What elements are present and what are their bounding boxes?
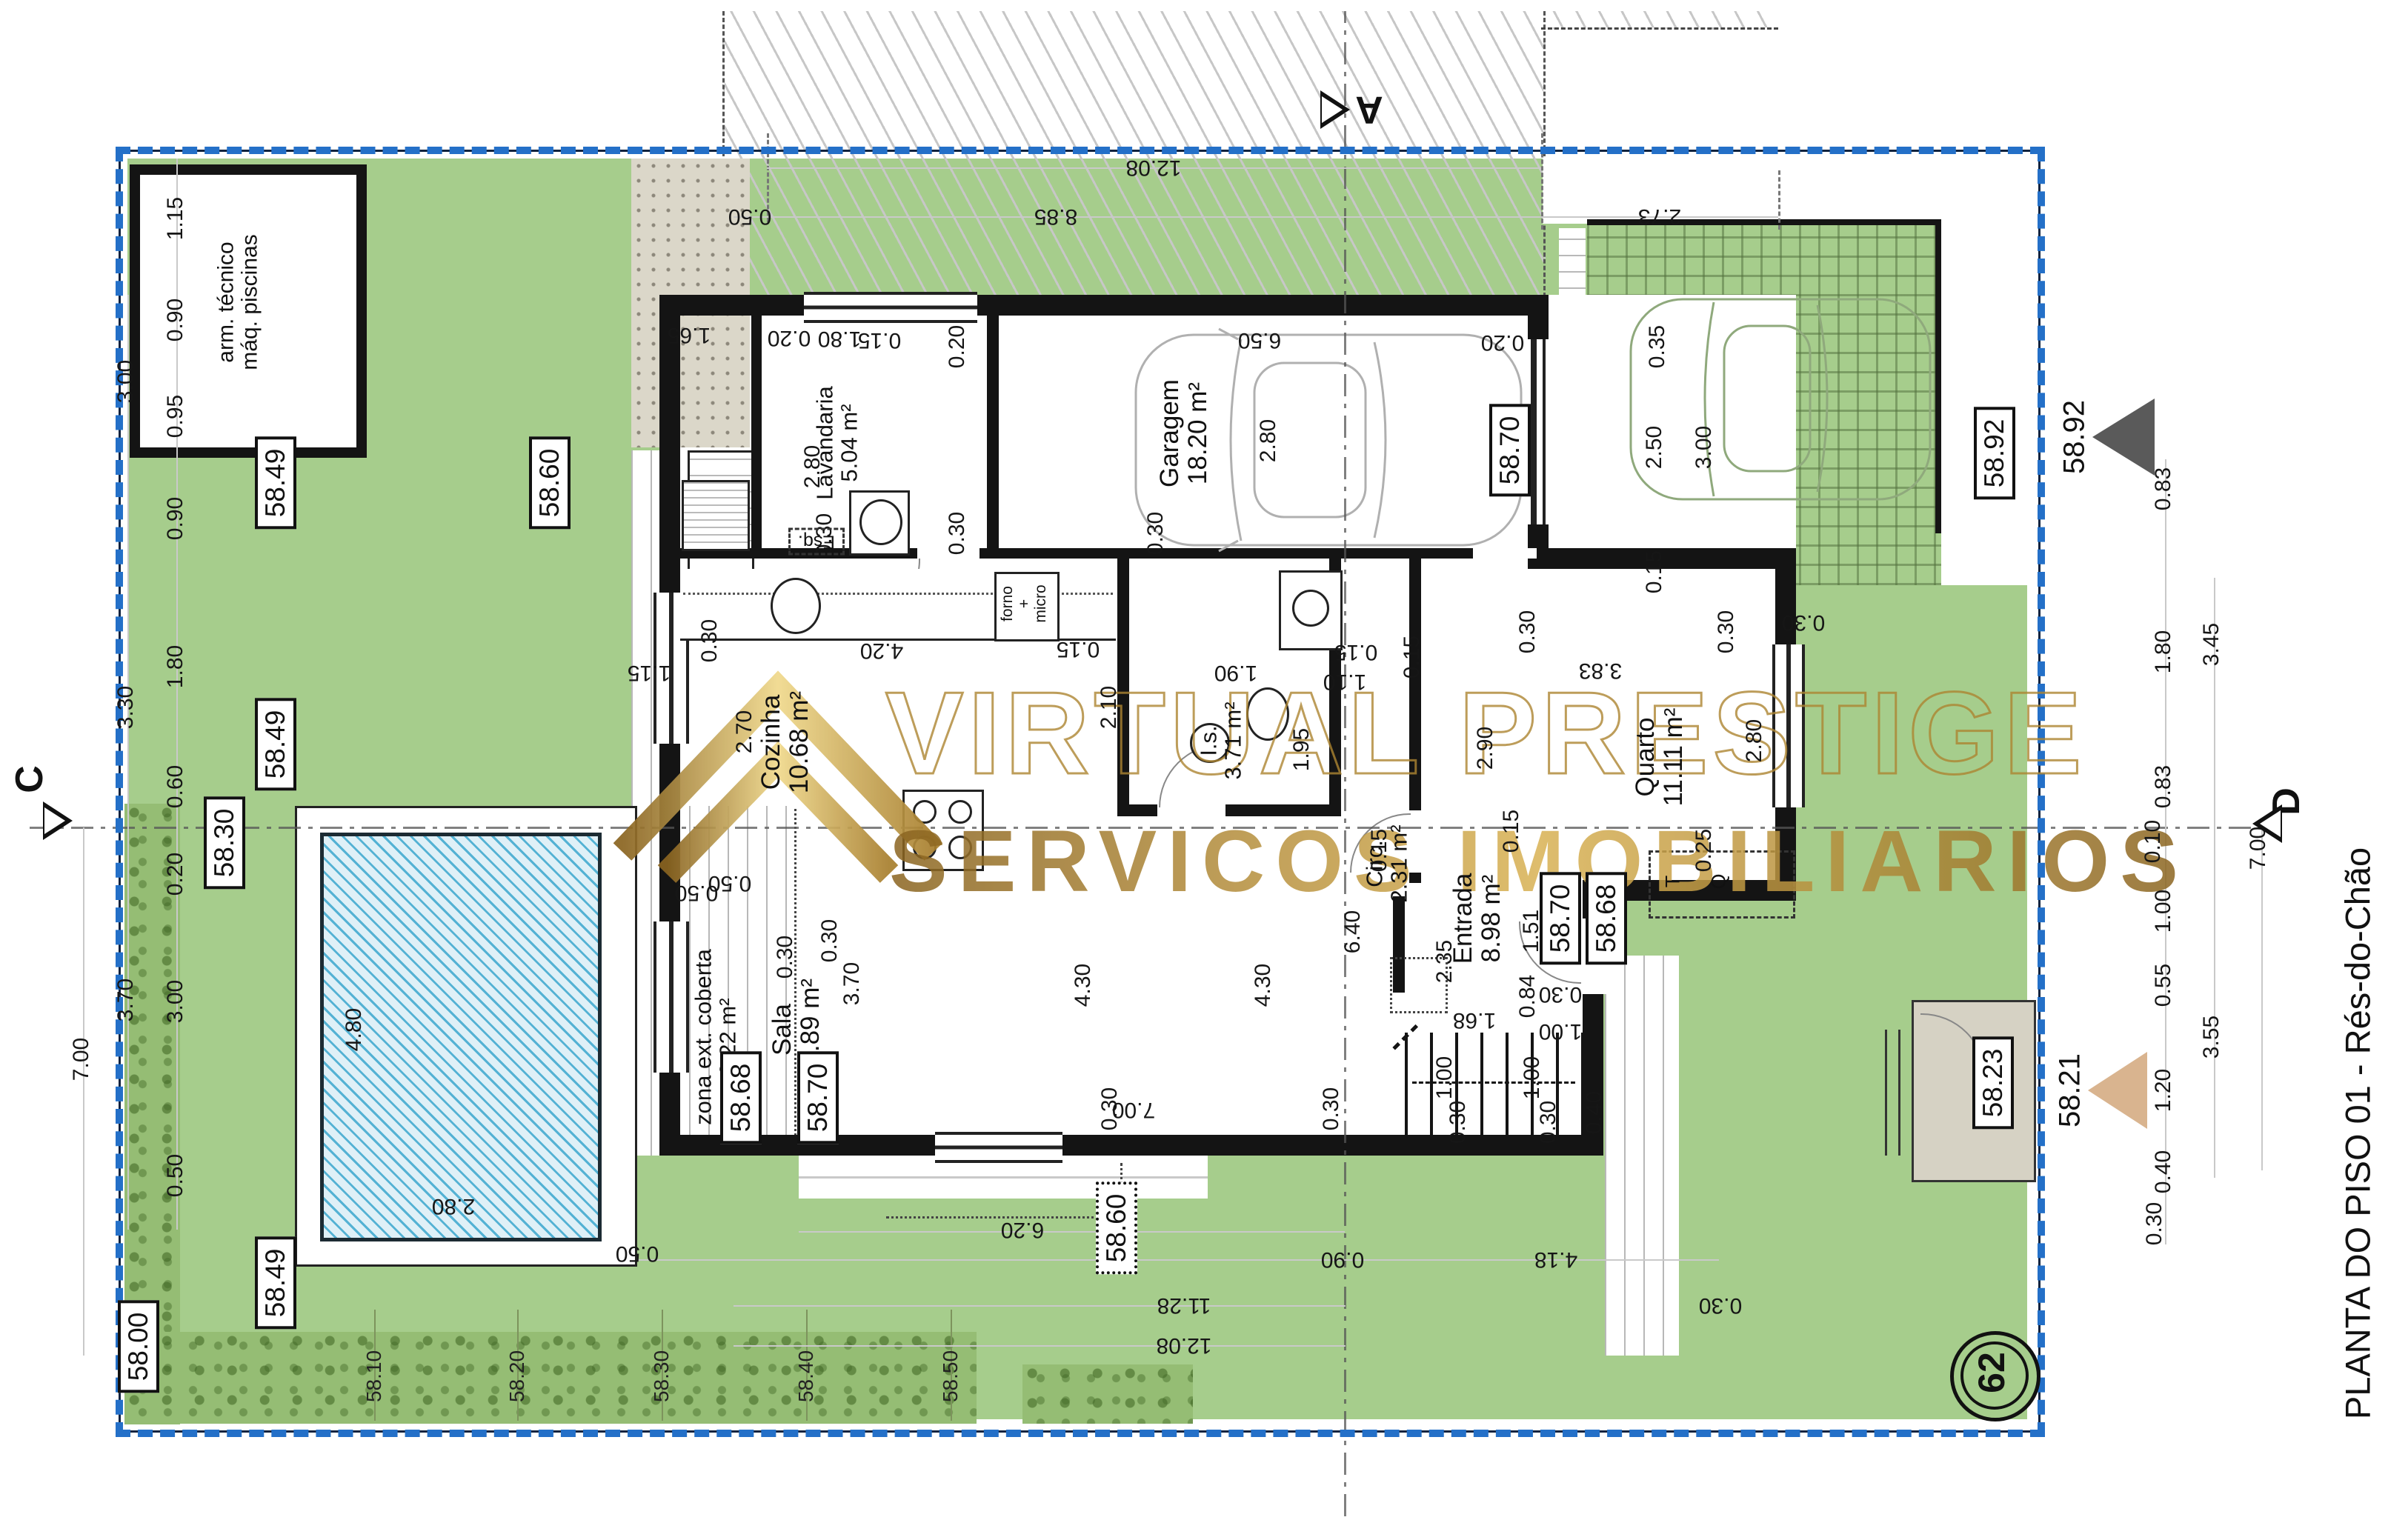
room-label: T <box>1662 876 1683 888</box>
watermark-text-sub: SERVICOS IMOBILIARIOS <box>889 811 2189 912</box>
dimension-label: 0.30 <box>1143 512 1168 555</box>
room-label-line: 11.11 m² <box>1660 708 1688 807</box>
dimension-label: 0.20 <box>163 853 188 896</box>
room-label-line: zona ext. coberta <box>691 949 716 1125</box>
contour-elevation-label: 58.30 <box>650 1350 673 1402</box>
dimension-label: 1.68 <box>1453 1007 1496 1033</box>
room-label-line: forno <box>1000 584 1017 622</box>
dimension-label: 1.90 <box>1214 660 1257 685</box>
spot-elevation-label: 58.21 <box>2054 1053 2087 1127</box>
spot-elevation-label: 58.92 <box>2058 400 2092 474</box>
dimension-label: 0.30 <box>1539 981 1582 1007</box>
dimension-label: 1.80 <box>818 326 861 351</box>
dimension-label: 2.70 <box>732 710 757 753</box>
dimension-label: 6.40 <box>1340 910 1366 953</box>
contour-elevation-label: 58.40 <box>794 1350 818 1402</box>
dimension-label: 0.30 <box>697 619 722 662</box>
dimension-label: 0.40 <box>2151 1150 2176 1193</box>
dimension-label: 0.15 <box>1400 636 1425 679</box>
existing-building-hatch-strip <box>1541 11 1778 30</box>
dimension-label: 1.00 <box>1539 1019 1582 1044</box>
dimension-label: 11.28 <box>1157 1293 1211 1318</box>
room-label-line: micro <box>1033 584 1050 622</box>
elevation-marker: 58.00 <box>118 1301 159 1393</box>
dimension-label: 1.00 <box>1432 1056 1457 1099</box>
dimension-label: 0.30 <box>817 919 842 962</box>
room-label-line: Lavandaria <box>813 386 837 499</box>
room-label-line: 18.20 m² <box>1184 379 1212 487</box>
dimension-label: 0.30 <box>1699 1293 1742 1318</box>
elevation-marker: 58.68 <box>1586 873 1627 965</box>
dimension-label: 2.10 <box>1097 686 1122 729</box>
dimension-label: 0.40 <box>1582 1091 1607 1134</box>
dimension-label: 1.15 <box>628 660 671 685</box>
room-label: I.s.3.71 m² <box>1197 701 1246 779</box>
room-label-line: I.s. <box>1197 701 1221 779</box>
dimension-label: 7.00 <box>69 1038 94 1081</box>
dimension-label: 0.50 <box>163 1154 188 1197</box>
dimension-label: 0.30 <box>1319 1087 1344 1130</box>
dimension-label: 0.20 <box>1481 330 1524 355</box>
dimension-label: 0.30 <box>1536 1101 1561 1144</box>
dimension-label: 3.70 <box>839 962 865 1005</box>
room-label-line: 3.71 m² <box>1221 701 1245 779</box>
room-label-line: Cozinha <box>757 691 785 793</box>
room-label: Esq. <box>788 528 845 556</box>
dimension-label: 0.30 <box>1515 610 1540 653</box>
dimension-label: 8.85 <box>1034 204 1077 229</box>
dimension-label: 0.15 <box>1057 636 1100 661</box>
dimension-label: 12.08 <box>1156 1333 1211 1358</box>
floor-plan-canvas: VIRTUAL PRESTIGE SERVICOS IMOBILIARIOS 6… <box>0 0 2408 1520</box>
elevation-marker: 58.60 <box>529 437 571 530</box>
dimension-label: 0.30 <box>1446 1101 1471 1144</box>
dimension-label: 4.30 <box>1251 964 1276 1007</box>
elevation-marker: 58.49 <box>255 1237 296 1330</box>
elevation-marker: 58.30 <box>204 797 245 890</box>
dimension-label: 3.30 <box>113 686 139 729</box>
room-label-line: + <box>1017 584 1034 622</box>
dimension-label: 0.90 <box>1321 1247 1364 1272</box>
dimension-label: 2.73 <box>1638 204 1681 229</box>
dimension-label: 0.20 <box>945 325 970 368</box>
dim-line <box>2261 827 2263 1170</box>
dimension-label: 0.15 <box>1334 639 1377 664</box>
dimension-label: 3.55 <box>2199 1016 2224 1059</box>
room-label: Q <box>1708 873 1729 889</box>
room-label-line: 5.04 m² <box>837 386 862 499</box>
dimension-label: 6.50 <box>1238 327 1281 353</box>
dimension-label: 6.20 <box>1001 1217 1044 1242</box>
room-label-line: T <box>1662 876 1683 888</box>
dimension-label: 0.83 <box>2151 765 2176 808</box>
room-label: Cozinha10.68 m² <box>757 691 814 793</box>
room-label: Entrada8.98 m² <box>1449 873 1506 964</box>
section-marker-triangle-inner <box>44 807 65 834</box>
elevation-marker: 58.70 <box>1540 873 1581 965</box>
lot-number: 62 <box>1970 1352 2013 1393</box>
room-label-line: 2.31 m² <box>1387 824 1411 902</box>
room-label-line: máq. piscinas <box>239 234 262 370</box>
room-label: arm. técnicomáq. piscinas <box>215 234 263 370</box>
dimension-label: 0.60 <box>163 765 188 808</box>
elevation-marker: 58.92 <box>1974 407 2015 500</box>
elevation-marker: 58.70 <box>1489 404 1531 497</box>
dimension-label: 1.95 <box>1289 728 1314 771</box>
dimension-label: 0.50 <box>728 204 771 229</box>
room-label-line: Garagem <box>1156 379 1184 487</box>
dimension-label: 3.00 <box>163 980 188 1023</box>
dimension-label: 1.20 <box>2151 1069 2176 1112</box>
room-label-line: 10.68 m² <box>785 691 814 793</box>
dimension-label: 0.30 <box>945 512 970 555</box>
room-label: Lavandaria5.04 m² <box>813 386 862 499</box>
section-marker-C: C <box>7 765 52 793</box>
contour-elevation-label: 58.50 <box>939 1350 962 1402</box>
room-label-line: arm. técnico <box>215 234 239 370</box>
dimension-label: 0.30 <box>2142 1202 2167 1245</box>
section-marker-A: A <box>1355 87 1383 132</box>
elevation-marker: 58.49 <box>255 437 296 530</box>
dimension-label: 1.10 <box>1323 669 1366 694</box>
dimension-label: 0.84 <box>1515 975 1540 1018</box>
dimension-label: 3.00 <box>113 360 139 403</box>
dimension-label: 2.80 <box>1742 719 1767 762</box>
dimension-label: 0.90 <box>163 299 188 341</box>
dimension-label: 0.25 <box>1692 829 1717 872</box>
dimension-label: 1.80 <box>163 645 188 688</box>
contour-elevation-label: 58.10 <box>362 1350 386 1402</box>
room-label-line: Esq. <box>798 532 835 552</box>
room-label-line: Quarto <box>1632 708 1660 807</box>
elevation-marker: 58.70 <box>797 1052 839 1144</box>
dimension-label: 2.80 <box>432 1193 475 1219</box>
dim-line <box>2214 578 2215 1178</box>
dimension-label: 3.83 <box>1579 658 1622 683</box>
dimension-label: 4.18 <box>1534 1247 1577 1272</box>
dimension-label: 2.90 <box>1473 727 1498 770</box>
room-label-line: Q <box>1708 873 1729 889</box>
dimension-label: 12.08 <box>1125 155 1181 180</box>
contour-elevation-label: 58.20 <box>505 1350 529 1402</box>
dimension-label: 0.90 <box>163 497 188 540</box>
room-label-line: Circ. <box>1363 824 1387 902</box>
dimension-label: 0.15 <box>1642 550 1667 593</box>
driveway-entry-arrow <box>2092 399 2155 476</box>
sheet-title: PLANTA DO PISO 01 - Rés-do-Chão <box>2338 847 2378 1419</box>
dimension-label: 0.83 <box>2151 467 2176 510</box>
room-label-line: 8.98 m² <box>1477 873 1506 964</box>
dimension-label: 0.50 <box>616 1241 659 1266</box>
dimension-label: 4.30 <box>1071 964 1096 1007</box>
dimension-label: 1.00 <box>2151 890 2176 933</box>
entry-path-arrow <box>2088 1052 2147 1129</box>
dimension-label: 1.80 <box>2151 630 2176 673</box>
dimension-label: 0.30 <box>1782 610 1825 635</box>
section-marker-triangle-inner <box>1322 96 1343 123</box>
dimension-label: 0.30 <box>1097 1087 1122 1130</box>
dimension-label: 0.35 <box>1645 325 1670 368</box>
dimension-label: 0.15 <box>1499 810 1524 853</box>
room-label-line: Entrada <box>1449 873 1477 964</box>
room-label-line: Sala <box>768 979 796 1081</box>
dimension-label: 3.45 <box>2199 623 2224 666</box>
elevation-marker: 58.23 <box>1972 1037 2014 1130</box>
room-label: Quarto11.11 m² <box>1632 708 1688 807</box>
room-label: Garagem18.20 m² <box>1156 379 1212 487</box>
dimension-label: 1.65 <box>668 322 711 347</box>
dimension-label: 0.50 <box>708 870 751 896</box>
dimension-label: 0.15 <box>858 327 901 353</box>
dimension-label: 0.10 <box>2141 820 2166 863</box>
elevation-marker: 58.49 <box>255 699 296 791</box>
dimension-label: 0.30 <box>773 936 798 979</box>
dimension-label: 3.00 <box>1692 426 1717 469</box>
dimension-label: 4.80 <box>342 1008 367 1051</box>
room-label: Circ.2.31 m² <box>1363 824 1412 902</box>
section-marker-triangle-inner <box>2260 810 2281 837</box>
dimension-label: 0.20 <box>768 325 811 350</box>
dimension-label: 1.15 <box>163 197 188 240</box>
dimension-label: 1.00 <box>1520 1056 1545 1099</box>
dimension-label: 4.20 <box>860 638 903 663</box>
dim-line <box>83 827 84 1356</box>
dimension-label: 2.80 <box>1256 419 1281 462</box>
dimension-label: 0.30 <box>1714 610 1739 653</box>
elevation-marker: 58.68 <box>720 1052 762 1144</box>
dimension-label: 2.50 <box>1642 426 1667 469</box>
dimension-label: 0.55 <box>2151 964 2176 1007</box>
elevation-marker: 58.60 <box>1096 1182 1137 1275</box>
room-label: forno+micro <box>1000 584 1050 622</box>
dimension-label: 3.70 <box>113 979 139 1021</box>
dimension-label: 0.95 <box>163 395 188 438</box>
